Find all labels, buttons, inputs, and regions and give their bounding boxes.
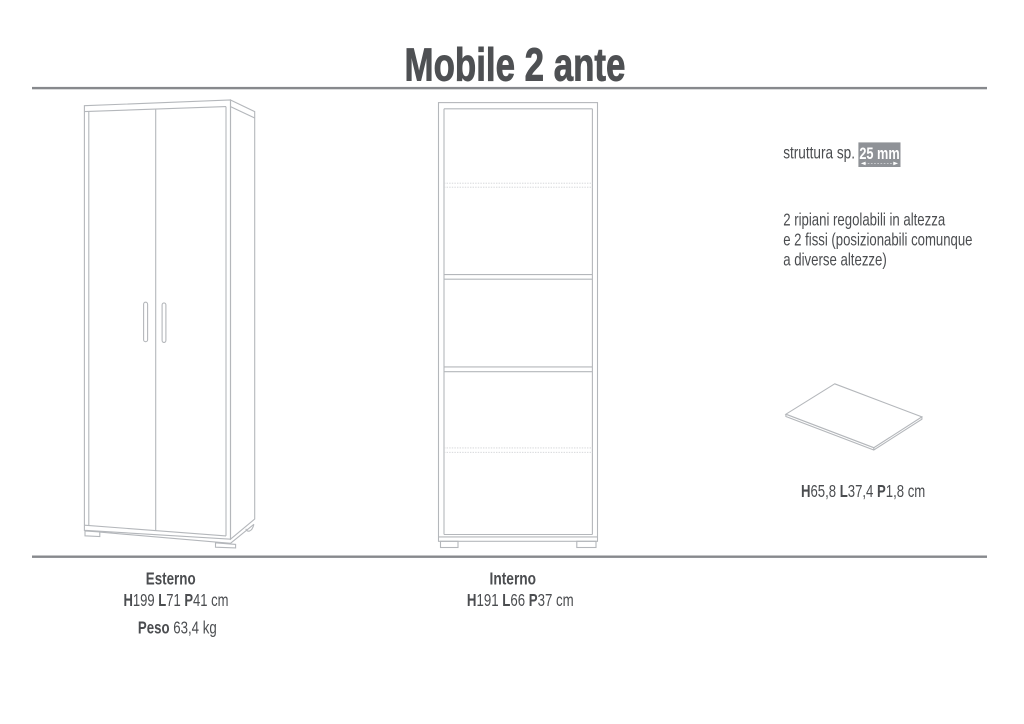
svg-text:Interno: Interno [490,570,537,589]
svg-text:a diverse altezze): a diverse altezze) [783,251,887,270]
svg-text:struttura sp.: struttura sp. [783,144,855,163]
svg-text:Esterno: Esterno [146,570,196,589]
svg-text:2 ripiani regolabili in altezz: 2 ripiani regolabili in altezza [783,211,945,230]
svg-text:Peso 63,4 kg: Peso 63,4 kg [138,619,217,638]
svg-text:H199 L71 P41 cm: H199 L71 P41 cm [123,591,228,610]
svg-text:Mobile 2 ante: Mobile 2 ante [405,39,626,91]
svg-text:H191 L66 P37 cm: H191 L66 P37 cm [467,591,574,610]
svg-text:e 2 fissi (posizionabili comun: e 2 fissi (posizionabili comunque [783,231,972,250]
svg-text:H65,8 L37,4 P1,8 cm: H65,8 L37,4 P1,8 cm [801,482,925,501]
svg-text:25 mm: 25 mm [859,146,899,164]
